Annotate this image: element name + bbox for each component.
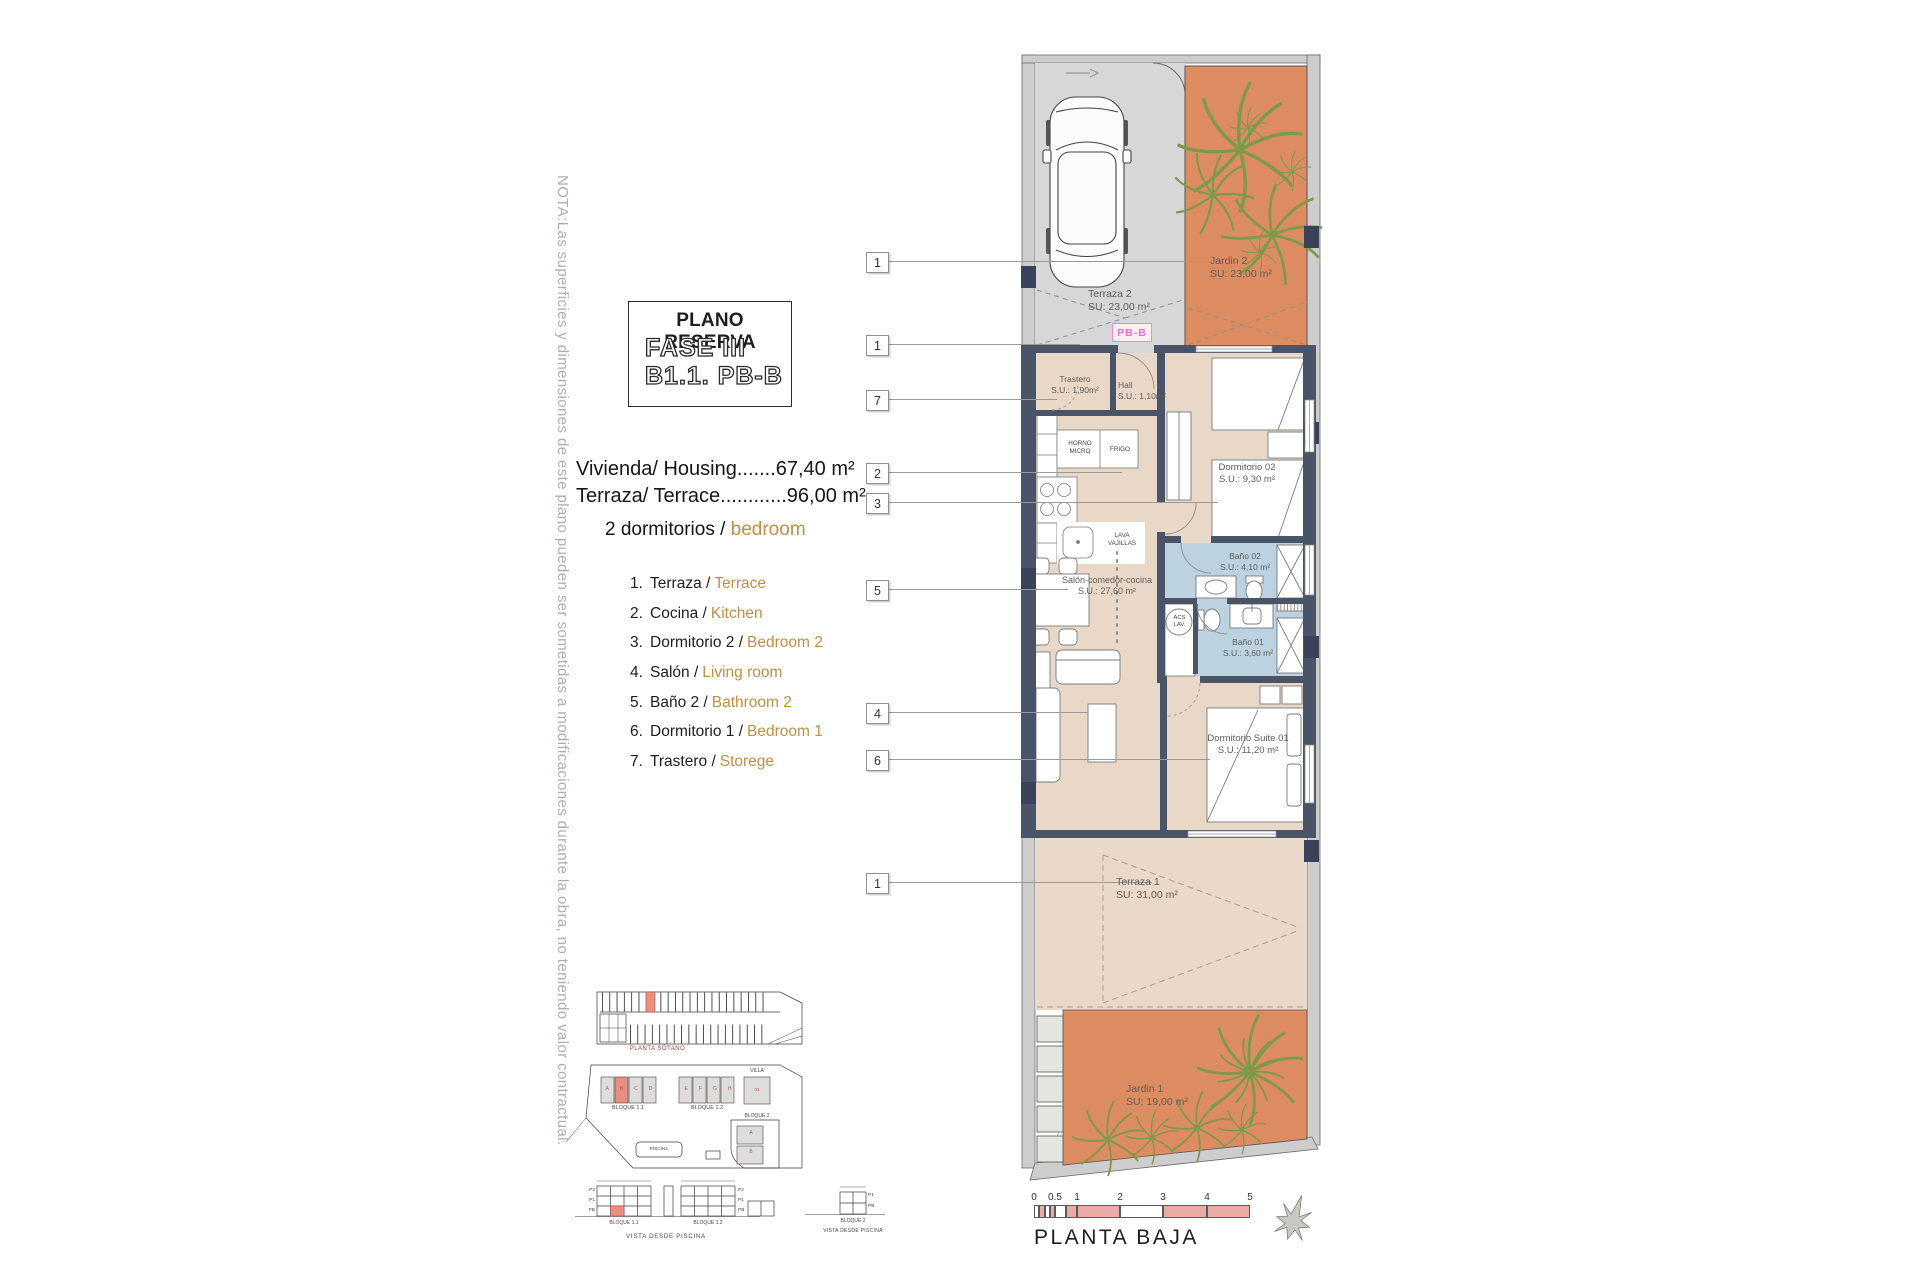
appliance-label-acs: ACS LAV. — [1166, 615, 1193, 629]
callout-box: 1 — [866, 335, 889, 356]
planta-baja-label: PLANTA BAJA — [1034, 1226, 1199, 1250]
legend-item: 6. Dormitorio 1 / Bedroom 1 — [630, 723, 823, 741]
legend-item: 1. Terraza / Terrace — [630, 575, 766, 593]
unit-letter: D — [649, 1086, 653, 1092]
unit-letter: E — [685, 1086, 688, 1092]
legend-num: 5. — [630, 694, 650, 712]
leader-line — [888, 472, 1122, 473]
bedrooms-en: bedroom — [731, 519, 806, 540]
margin-note: NOTA:Las superficies y dimensiones de es… — [545, 175, 571, 1185]
legend-es: Trastero / — [650, 753, 716, 771]
room-label-trastero: Trastero S.U.: 1,90m² — [1040, 374, 1110, 395]
unit-letters-b12: EFGH — [679, 1086, 737, 1092]
scale-tick: 0.5 — [1048, 1192, 1062, 1203]
pbb-tag: PB-B — [1112, 323, 1152, 342]
bedrooms-line: 2 dormitorios / bedroom — [605, 519, 806, 541]
compass-icon — [1262, 1186, 1324, 1258]
room-label-salon: Salón-comedor-cocina S.U.: 27,60 m² — [1058, 575, 1156, 598]
appliance-label-horno: HORNO MICRO — [1059, 440, 1101, 456]
legend-es: Salón / — [650, 664, 698, 682]
bloque2-site-label: BLOQUE 2 — [732, 1113, 782, 1119]
floor-label: PB — [583, 1208, 595, 1213]
unit-letter: H — [728, 1086, 732, 1092]
legend-item: 7. Trastero / Storege — [630, 753, 774, 771]
legend-es: Baño 2 / — [650, 694, 708, 712]
legend-num: 7. — [630, 753, 650, 771]
scale-tick: 4 — [1204, 1192, 1210, 1203]
callout-box: 2 — [866, 463, 889, 484]
villa-label: VILLA — [742, 1068, 772, 1074]
floor-label: P1 — [738, 1198, 750, 1203]
legend-en: Bedroom 1 — [747, 723, 823, 741]
unit-letters-b11: ABCD — [600, 1086, 658, 1092]
floor-label: P2 — [738, 1188, 750, 1193]
legend-num: 3. — [630, 634, 650, 652]
floor-label: PB — [738, 1208, 750, 1213]
leader-line — [888, 759, 1210, 760]
car-icon — [1043, 97, 1131, 287]
scale-tick: 2 — [1117, 1192, 1123, 1203]
leader-line — [888, 399, 1057, 400]
legend-en: Storege — [720, 753, 774, 771]
room-label-bano01: Baño 01 S.U.: 3,60 m² — [1206, 637, 1290, 658]
room-label-hall: Hall S.U.: 1,10m² — [1118, 380, 1166, 401]
leader-line — [888, 712, 1088, 713]
scale-tick: 3 — [1160, 1192, 1166, 1203]
legend-es: Cocina / — [650, 605, 707, 623]
area-housing: Vivienda/ Housing.......67,40 m² — [576, 458, 855, 481]
scale-bar — [1034, 1205, 1250, 1218]
floor-label: P1 — [583, 1198, 595, 1203]
scale-tick: 1 — [1074, 1192, 1080, 1203]
sotano-label: PLANTA SÓTANO — [600, 1046, 715, 1052]
floor-label: P1 — [868, 1193, 880, 1198]
callout-box: 7 — [866, 390, 889, 411]
appliance-label-lava: LAVA VAJILLAS — [1098, 532, 1146, 548]
leader-line — [888, 344, 1080, 345]
callout-box: 1 — [866, 252, 889, 273]
leader-line — [888, 589, 1068, 590]
legend-item: 3. Dormitorio 2 / Bedroom 2 — [630, 634, 823, 652]
callout-box: 4 — [866, 703, 889, 724]
room-label-suite: Dormitorio Suite 01 S.U.: 11,20 m² — [1198, 733, 1298, 757]
scale-tick: 5 — [1247, 1192, 1253, 1203]
legend-es: Dormitorio 2 / — [650, 634, 743, 652]
piscina-label: PISCINA — [637, 1146, 681, 1151]
area-terrace: Terraza/ Terrace............96,00 m² — [576, 485, 866, 508]
bloque12-site-label: BLOQUE 1.2 — [676, 1105, 738, 1111]
callout-box: 1 — [866, 873, 889, 894]
legend-en: Bathroom 2 — [712, 694, 792, 712]
bloque2-elev-label: BLOQUE 2 — [827, 1218, 879, 1224]
bloque2-unit-b: B — [739, 1149, 763, 1155]
legend-en: Bedroom 2 — [747, 634, 823, 652]
legend-en: Terrace — [714, 575, 766, 593]
villa-unit-label: 01 — [744, 1087, 770, 1092]
room-label-dormitorio02: Dormitorio 02 S.U.: 9,30 m² — [1198, 462, 1296, 486]
legend-num: 4. — [630, 664, 650, 682]
leader-line — [888, 882, 1152, 883]
unit-letter: F — [699, 1086, 702, 1092]
vista-label: VISTA DESDE PISCINA — [811, 1228, 895, 1234]
room-label-jardin2: Jardin 2 SU: 23,00 m² — [1210, 255, 1272, 281]
room-label-terraza2: Terraza 2 SU: 23,00 m² — [1088, 288, 1150, 314]
room-label-bano02: Baño 02 S.U.: 4,10 m² — [1203, 551, 1287, 572]
floor-label: P2 — [583, 1188, 595, 1193]
unit-letter: C — [634, 1086, 638, 1092]
callout-box: 3 — [866, 493, 889, 514]
unit-title: B1.1. PB-B — [645, 362, 783, 390]
bloque12-elev-label: BLOQUE 1.2 — [681, 1220, 735, 1226]
title-box: PLANO RESERVA FASE III B1.1. PB-B — [628, 301, 792, 407]
phase-title: FASE III — [645, 334, 746, 362]
legend-item: 5. Baño 2 / Bathroom 2 — [630, 694, 792, 712]
bloque11-site-label: BLOQUE 1.1 — [597, 1105, 659, 1111]
leader-line — [888, 502, 1218, 503]
leader-line — [888, 261, 1222, 262]
bloque2-unit-a: A — [739, 1130, 763, 1136]
room-label-terraza1: Terraza 1 SU: 31,00 m² — [1116, 876, 1178, 902]
legend-num: 2. — [630, 605, 650, 623]
room-label-jardin1: Jardin 1 SU: 19,00 m² — [1126, 1083, 1188, 1109]
legend-num: 1. — [630, 575, 650, 593]
unit-letter: G — [713, 1086, 717, 1092]
vista-label: VISTA DESDE PISCINA — [586, 1234, 746, 1240]
legend-en: Living room — [702, 664, 782, 682]
legend-en: Kitchen — [711, 605, 763, 623]
scale-tick: 0 — [1031, 1192, 1037, 1203]
appliance-label-frigo: FRIGO — [1102, 446, 1138, 454]
unit-letter: A — [606, 1086, 609, 1092]
outline-title: FASE III B1.1. PB-B — [645, 332, 795, 396]
callout-box: 6 — [866, 750, 889, 771]
legend-item: 4. Salón / Living room — [630, 664, 782, 682]
legend-item: 2. Cocina / Kitchen — [630, 605, 763, 623]
floor-label: PB — [868, 1204, 880, 1209]
callout-box: 5 — [866, 580, 889, 601]
unit-letter: B — [620, 1086, 623, 1092]
legend-num: 6. — [630, 723, 650, 741]
bloque11-elev-label: BLOQUE 1.1 — [597, 1220, 651, 1226]
floorplan-sheet: NOTA:Las superficies y dimensiones de es… — [0, 0, 1920, 1280]
legend-es: Dormitorio 1 / — [650, 723, 743, 741]
legend-es: Terraza / — [650, 575, 710, 593]
bedrooms-es: 2 dormitorios / — [605, 519, 725, 540]
